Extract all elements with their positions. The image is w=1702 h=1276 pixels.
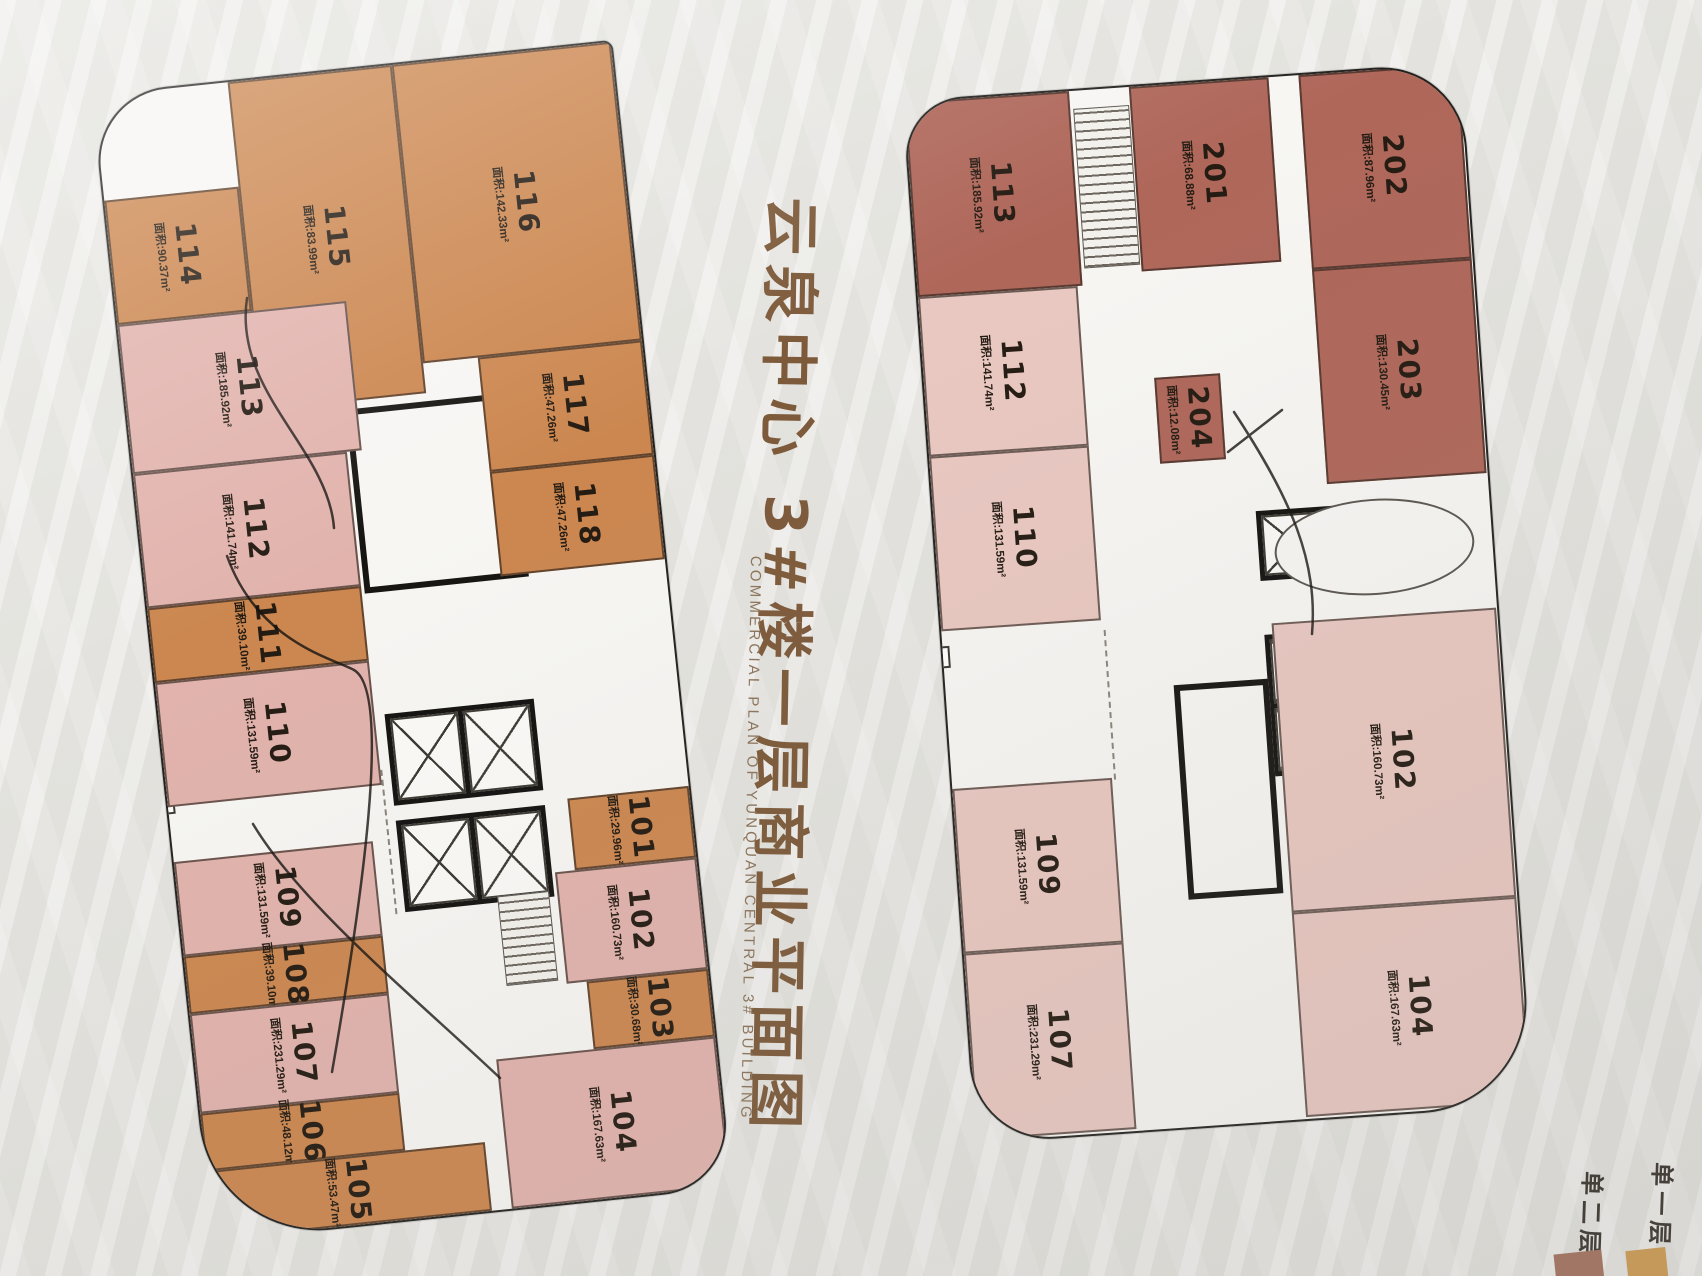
area-prefix: 面积: (490, 166, 505, 194)
unit-number: 111 (249, 597, 286, 669)
area-value: 29.96m² (608, 821, 624, 865)
area-value: 53.47m² (325, 1184, 341, 1228)
area-value: 68.88m² (1181, 167, 1196, 211)
unit-label: 203面积:130.45m² (1314, 261, 1484, 482)
unit-number: 103 (642, 972, 679, 1044)
area-prefix: 面积: (586, 1086, 601, 1114)
area-value: 141.74m² (979, 361, 994, 411)
stairs-icon (497, 891, 558, 986)
floor-plan-level-1: 114面积:90.37m²115面积:83.99m²116面积:142.33m²… (91, 40, 733, 1242)
unit-number: 202 (1377, 130, 1411, 202)
area-value: 160.73m² (607, 911, 624, 961)
unit-label: 103面积:30.68m² (589, 971, 713, 1047)
unit-left-101: 101面积:29.96m² (567, 786, 696, 870)
area-prefix: 面积: (551, 482, 566, 510)
unit-right-201: 201面积:68.88m² (1129, 77, 1282, 271)
area-prefix: 面积: (539, 373, 554, 401)
unit-label: 117面积:47.26m² (480, 343, 652, 470)
area-value: 167.63m² (589, 1113, 606, 1163)
area-prefix: 面积: (1179, 140, 1193, 168)
unit-number: 118 (568, 478, 605, 550)
unit-left-118: 118面积:47.26m² (490, 455, 665, 577)
unit-label: 116面积:142.33m² (394, 44, 640, 361)
area-prefix: 面积: (968, 157, 982, 185)
unit-label: 113面积:185.92m² (120, 303, 360, 472)
area-prefix: 面积: (300, 204, 315, 232)
unit-number: 109 (1030, 826, 1065, 904)
area-value: 47.26m² (542, 399, 558, 443)
unit-number: 104 (1403, 967, 1438, 1045)
unit-right-110: 110面积:131.59m² (929, 446, 1101, 632)
unit-label: 113面积:185.92m² (906, 93, 1080, 295)
unit-label: 112面积:141.74m² (135, 454, 359, 606)
elevator-icon (401, 818, 477, 907)
unit-right-202: 202面积:87.96m² (1298, 64, 1471, 270)
unit-number: 204 (1182, 382, 1216, 454)
stairs-icon (1073, 105, 1140, 269)
unit-label: 110面积:131.59m² (931, 448, 1099, 629)
unit-number: 106 (294, 1095, 331, 1167)
unit-label: 204面积:12.08m² (1156, 375, 1224, 461)
area-prefix: 面积: (151, 222, 166, 250)
area-prefix: 面积: (605, 795, 620, 823)
area-prefix: 面积: (267, 1017, 282, 1045)
unit-number: 109 (269, 859, 306, 938)
area-prefix: 面积: (624, 976, 639, 1004)
elevator-icon (390, 712, 466, 801)
area-prefix: 面积: (1368, 723, 1382, 751)
area-value: 30.68m² (627, 1002, 643, 1046)
unit-label: 109面积:131.59m² (176, 843, 380, 954)
area-prefix: 面积: (213, 351, 228, 379)
unit-label: 114面积:90.37m² (106, 189, 249, 323)
area-value: 12.08m² (1166, 411, 1181, 455)
legend-swatch-duplex (1554, 1250, 1607, 1276)
unit-left-110: 110面积:131.59m² (155, 661, 382, 808)
area-value: 131.59m² (1014, 855, 1029, 905)
unit-number: 110 (1007, 499, 1042, 577)
unit-number: 116 (508, 162, 545, 241)
unit-right-104: 104面积:167.63m² (1292, 897, 1531, 1117)
area-value: 142.33m² (493, 193, 510, 243)
elevator-icon (462, 704, 538, 793)
unit-number: 104 (604, 1082, 641, 1161)
unit-label: 118面积:47.26m² (492, 457, 663, 574)
unit-right-204: 204面积:12.08m² (1154, 373, 1226, 463)
area-prefix: 面积: (1385, 970, 1399, 998)
unit-number: 108 (277, 938, 314, 1010)
area-prefix: 面积: (989, 501, 1003, 529)
boundary-dashed-line (1104, 630, 1116, 780)
unit-label: 104面积:167.63m² (1294, 899, 1528, 1115)
unit-right-113: 113面积:185.92m² (904, 91, 1082, 297)
area-prefix: 面积: (978, 334, 992, 362)
unit-right-107: 107面积:231.29m² (964, 942, 1137, 1140)
unit-left-104: 104面积:167.63m² (496, 1036, 730, 1208)
unit-left-112: 112面积:141.74m² (133, 452, 361, 609)
floor-plan-level-2: 113面积:185.92m²201面积:68.88m²202面积:87.96m²… (902, 62, 1534, 1145)
unit-number: 110 (259, 694, 296, 773)
elevator-bank (385, 699, 544, 806)
unit-label: 104面积:167.63m² (498, 1039, 728, 1207)
unit-number: 112 (238, 490, 275, 569)
unit-left-113: 113面积:185.92m² (117, 301, 361, 474)
unit-number: 102 (622, 880, 659, 959)
area-prefix: 面积: (1012, 829, 1026, 857)
area-value: 167.63m² (1387, 997, 1402, 1047)
area-prefix: 面积: (1164, 385, 1178, 413)
unit-number: 115 (318, 200, 355, 272)
area-value: 141.74m² (223, 520, 240, 570)
unit-label: 112面积:141.74m² (920, 288, 1087, 455)
area-value: 231.29m² (270, 1044, 287, 1094)
legend-label-duplex: 单二层 (1574, 1171, 1612, 1259)
unit-label: 107面积:231.29m² (966, 945, 1134, 1138)
area-value: 87.96m² (1361, 160, 1376, 204)
area-value: 130.45m² (1375, 361, 1390, 411)
unit-label: 102面积:160.73m² (557, 860, 706, 982)
column-marker (934, 646, 950, 669)
area-value: 131.59m² (254, 889, 271, 939)
unit-right-102: 102面积:160.73m² (1272, 608, 1517, 913)
unit-number: 112 (995, 332, 1030, 410)
unit-number: 113 (986, 155, 1021, 233)
legend-label-single: 单一层 (1644, 1162, 1682, 1250)
area-value: 47.26m² (553, 509, 569, 553)
elevator-icon (473, 811, 549, 900)
area-value: 185.92m² (970, 184, 985, 234)
area-value: 39.10m² (234, 628, 250, 672)
unit-number: 114 (169, 219, 206, 291)
unit-right-109: 109面积:131.59m² (952, 778, 1123, 954)
area-prefix: 面积: (231, 601, 246, 629)
area-value: 131.59m² (244, 724, 261, 774)
unit-label: 107面积:231.29m² (192, 996, 397, 1112)
area-prefix: 面积: (241, 697, 256, 725)
area-prefix: 面积: (220, 493, 235, 521)
unit-number: 105 (340, 1154, 377, 1226)
unit-right-112: 112面积:141.74m² (918, 286, 1089, 457)
unit-label: 110面积:131.59m² (157, 663, 379, 805)
unit-number: 107 (285, 1013, 322, 1092)
unit-number: 201 (1197, 138, 1231, 210)
area-prefix: 面积: (1024, 1004, 1038, 1032)
unit-label: 109面积:131.59m² (954, 780, 1121, 951)
unit-number: 117 (557, 369, 594, 441)
unit-label: 101面积:29.96m² (570, 788, 694, 868)
area-prefix: 面积: (604, 884, 619, 912)
area-prefix: 面积: (322, 1158, 337, 1186)
unit-label: 202面积:87.96m² (1301, 66, 1470, 267)
unit-label: 201面积:68.88m² (1131, 79, 1279, 269)
unit-number: 101 (623, 791, 660, 863)
unit-number: 102 (1386, 720, 1421, 798)
area-value: 90.37m² (154, 249, 170, 293)
unit-left-116: 116面积:142.33m² (392, 42, 642, 363)
unit-left-117: 117面积:47.26m² (478, 340, 654, 472)
unit-label: 102面积:160.73m² (1274, 610, 1514, 911)
unit-number: 113 (230, 347, 267, 426)
core-room (1174, 679, 1284, 900)
area-value: 83.99m² (303, 231, 319, 275)
unit-number: 107 (1042, 1002, 1077, 1080)
area-prefix: 面积: (276, 1099, 291, 1127)
area-prefix: 面积: (251, 862, 266, 890)
unit-left-102: 102面积:160.73m² (555, 857, 708, 983)
unit-number: 203 (1391, 332, 1426, 410)
area-value: 185.92m² (215, 378, 232, 428)
area-prefix: 面积: (1373, 334, 1387, 362)
legend-swatch-single (1625, 1247, 1670, 1276)
unit-left-114: 114面积:90.37m² (104, 187, 251, 325)
area-prefix: 面积: (1359, 133, 1373, 161)
unit-left-103: 103面积:30.68m² (587, 969, 715, 1049)
area-value: 231.29m² (1026, 1031, 1041, 1081)
unit-right-203: 203面积:130.45m² (1312, 258, 1487, 484)
area-prefix: 面积: (260, 941, 275, 969)
area-value: 131.59m² (991, 528, 1006, 578)
floor-plan-poster: 114面积:90.37m²115面积:83.99m²116面积:142.33m²… (0, 0, 1702, 1276)
area-value: 160.73m² (1370, 750, 1385, 800)
